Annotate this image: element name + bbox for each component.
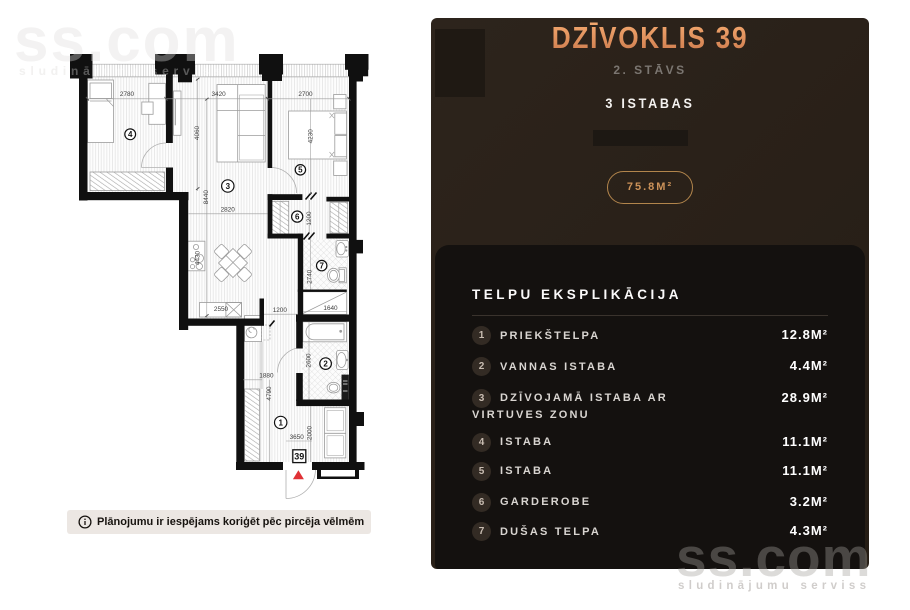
svg-text:4430: 4430 [194,250,201,265]
svg-text:2600: 2600 [305,353,312,368]
svg-text:4790: 4790 [266,386,273,401]
svg-text:1880: 1880 [259,373,274,380]
svg-text:8440: 8440 [203,190,210,205]
svg-text:2780: 2780 [120,91,135,98]
svg-text:6: 6 [295,212,300,221]
svg-text:3650: 3650 [290,434,305,441]
svg-text:3: 3 [226,182,231,191]
svg-text:4230: 4230 [307,129,314,144]
svg-text:4060: 4060 [194,125,201,140]
svg-text:1200: 1200 [306,211,313,226]
svg-text:3420: 3420 [211,91,226,98]
svg-text:1200: 1200 [273,307,288,314]
svg-text:1: 1 [278,418,283,427]
svg-text:39: 39 [294,452,304,462]
svg-text:2000: 2000 [306,425,313,440]
svg-text:2820: 2820 [221,207,236,214]
svg-text:4: 4 [128,130,133,139]
svg-text:1640: 1640 [323,305,338,312]
svg-text:2740: 2740 [306,269,313,284]
svg-text:2700: 2700 [298,91,313,98]
svg-text:5: 5 [298,166,303,175]
svg-text:2: 2 [323,360,328,369]
svg-text:7: 7 [319,261,324,270]
svg-text:2550: 2550 [214,306,229,313]
